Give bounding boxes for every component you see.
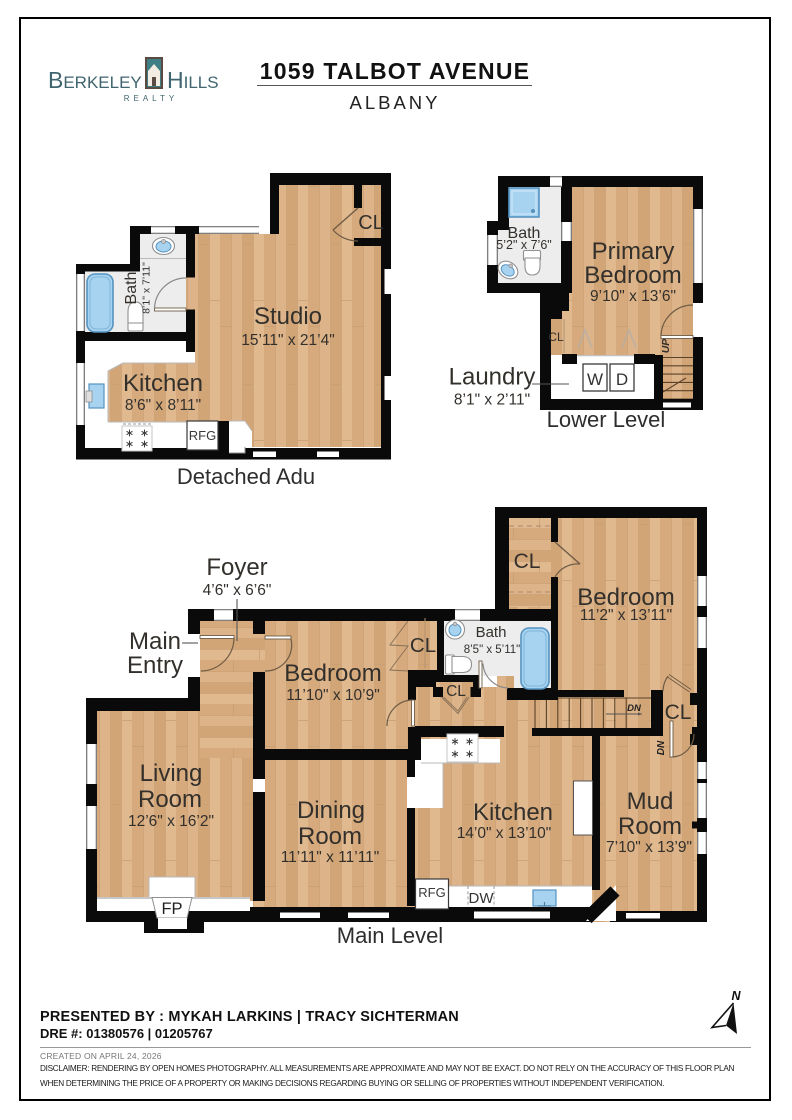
svg-text:8’6" x 8’11": 8’6" x 8’11" <box>125 397 201 414</box>
svg-text:15’11" x 21’4": 15’11" x 21’4" <box>241 332 334 349</box>
svg-text:DN: DN <box>656 740 667 755</box>
svg-text:5’2" x 7’6": 5’2" x 7’6" <box>496 238 551 252</box>
svg-text:Kitchen: Kitchen <box>123 370 203 397</box>
svg-text:Room: Room <box>618 813 682 840</box>
svg-text:CL: CL <box>514 550 541 573</box>
svg-text:Lower Level: Lower Level <box>547 407 666 432</box>
svg-text:9’10" x 13’6": 9’10" x 13’6" <box>590 288 676 305</box>
svg-text:CL: CL <box>358 212 384 234</box>
svg-text:Studio: Studio <box>254 303 322 330</box>
svg-text:RFG: RFG <box>189 428 216 443</box>
svg-text:DN: DN <box>627 703 642 714</box>
svg-text:W: W <box>587 370 603 389</box>
svg-text:4’6" x 6’6": 4’6" x 6’6" <box>203 582 272 599</box>
svg-text:Bath: Bath <box>476 624 507 641</box>
svg-text:UP: UP <box>660 338 672 354</box>
svg-text:CL: CL <box>665 701 692 724</box>
svg-text:Foyer: Foyer <box>206 554 267 581</box>
svg-text:Dining: Dining <box>297 797 365 824</box>
svg-text:CL: CL <box>446 683 466 700</box>
svg-text:CL: CL <box>548 330 564 344</box>
svg-text:Bedroom: Bedroom <box>584 262 681 289</box>
svg-text:RFG: RFG <box>418 885 445 900</box>
svg-text:N: N <box>731 989 741 1003</box>
svg-text:7’10" x 13’9": 7’10" x 13’9" <box>606 839 692 856</box>
svg-text:Bath: Bath <box>123 272 140 305</box>
svg-text:11’11" x 11’11": 11’11" x 11’11" <box>281 849 380 866</box>
svg-text:8’5" x 5’11": 8’5" x 5’11" <box>464 644 521 656</box>
svg-text:Entry: Entry <box>127 652 183 679</box>
svg-text:14’0" x 13’10": 14’0" x 13’10" <box>457 825 552 842</box>
svg-text:DW: DW <box>469 890 495 907</box>
svg-text:Living: Living <box>140 760 203 787</box>
svg-text:11’10" x 10’9": 11’10" x 10’9" <box>286 687 379 704</box>
svg-text:Room: Room <box>138 786 202 813</box>
svg-text:12’6" x 16’2": 12’6" x 16’2" <box>128 813 214 830</box>
svg-text:11’2" x 13’11": 11’2" x 13’11" <box>580 607 672 624</box>
svg-text:Mud: Mud <box>627 788 674 815</box>
svg-text:Room: Room <box>298 823 362 850</box>
svg-text:8’1" x 2’11": 8’1" x 2’11" <box>454 392 530 409</box>
svg-text:D: D <box>616 370 628 389</box>
svg-text:8’1" x 7’11": 8’1" x 7’11" <box>141 262 153 314</box>
svg-text:Main Level: Main Level <box>337 923 443 948</box>
svg-text:Main: Main <box>129 628 181 655</box>
svg-text:Primary: Primary <box>592 238 675 265</box>
svg-text:CL: CL <box>410 634 436 657</box>
svg-text:Laundry: Laundry <box>449 364 536 391</box>
svg-text:Detached Adu: Detached Adu <box>177 464 315 489</box>
svg-text:Bedroom: Bedroom <box>284 660 381 687</box>
svg-text:Kitchen: Kitchen <box>473 799 553 826</box>
svg-text:FP: FP <box>161 900 182 918</box>
